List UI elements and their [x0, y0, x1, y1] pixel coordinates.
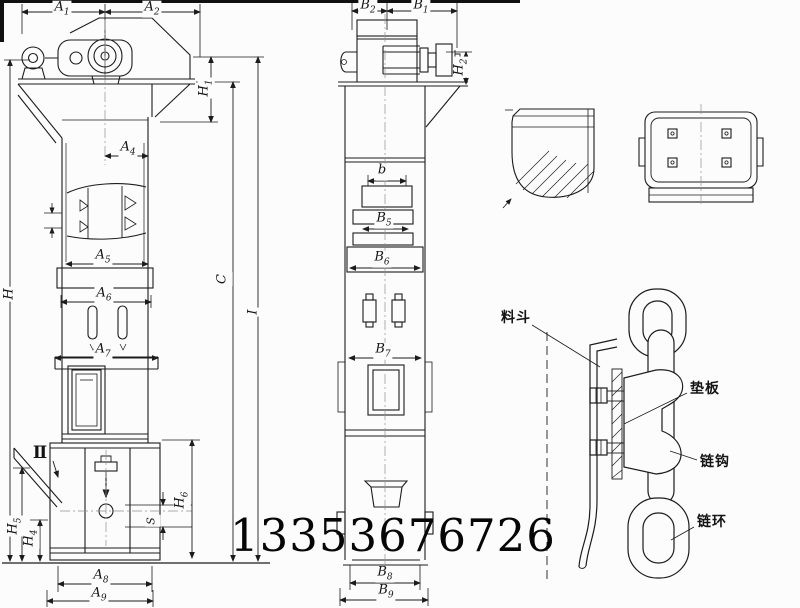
scan-border — [0, 0, 520, 42]
technical-drawing-page: A1 A2 A4 A5 A6 A7 A8 A9 H H1 H4 H5 H6 S … — [0, 0, 800, 608]
dim-label-c: C — [216, 272, 233, 286]
bucket-detail-front-view — [639, 104, 763, 206]
dim-label-b7: B7 — [373, 343, 392, 360]
label-chain-hook: 链钩 — [700, 451, 730, 471]
dim-label-b6: B6 — [372, 251, 391, 268]
dim-label-b5: B5 — [374, 212, 393, 229]
dim-label-a6: A6 — [94, 287, 113, 304]
dim-label-b8: B8 — [375, 566, 394, 583]
label-hopper: 料斗 — [501, 307, 531, 327]
dim-label-a7: A7 — [93, 343, 112, 360]
watermark-phone-number: 13353676726 — [230, 513, 556, 558]
dim-label-a2: A2 — [142, 1, 161, 18]
label-pad-plate: 垫板 — [690, 378, 720, 398]
label-chain-ring: 链环 — [697, 511, 727, 531]
dim-label-b: b — [376, 164, 388, 181]
dim-label-i: I — [247, 307, 264, 316]
dim-label-a4: A4 — [118, 141, 137, 158]
bucket-detail-side-view — [503, 109, 594, 208]
dim-label-h5: H5 — [7, 515, 24, 536]
dim-label-h: H — [3, 286, 20, 301]
dim-label-a1: A1 — [52, 1, 71, 18]
dim-label-h4: H4 — [23, 527, 40, 548]
dim-label-h2: H2 — [453, 56, 470, 77]
dim-label-b9: B9 — [376, 584, 395, 601]
dim-label-b2: B2 — [358, 0, 377, 15]
chain-attachment-detail — [532, 289, 697, 584]
dim-label-h6: H6 — [174, 489, 191, 510]
dim-label-s: S — [145, 515, 160, 527]
dim-label-a9: A9 — [89, 587, 108, 604]
dim-label-b1: B1 — [411, 0, 430, 15]
section-mark-ii: Ⅱ — [31, 445, 49, 465]
dim-label-a8: A8 — [91, 569, 110, 586]
front-elevation-view — [14, 4, 200, 560]
dim-label-a5: A5 — [93, 249, 112, 266]
dim-label-h1: H1 — [198, 77, 215, 98]
